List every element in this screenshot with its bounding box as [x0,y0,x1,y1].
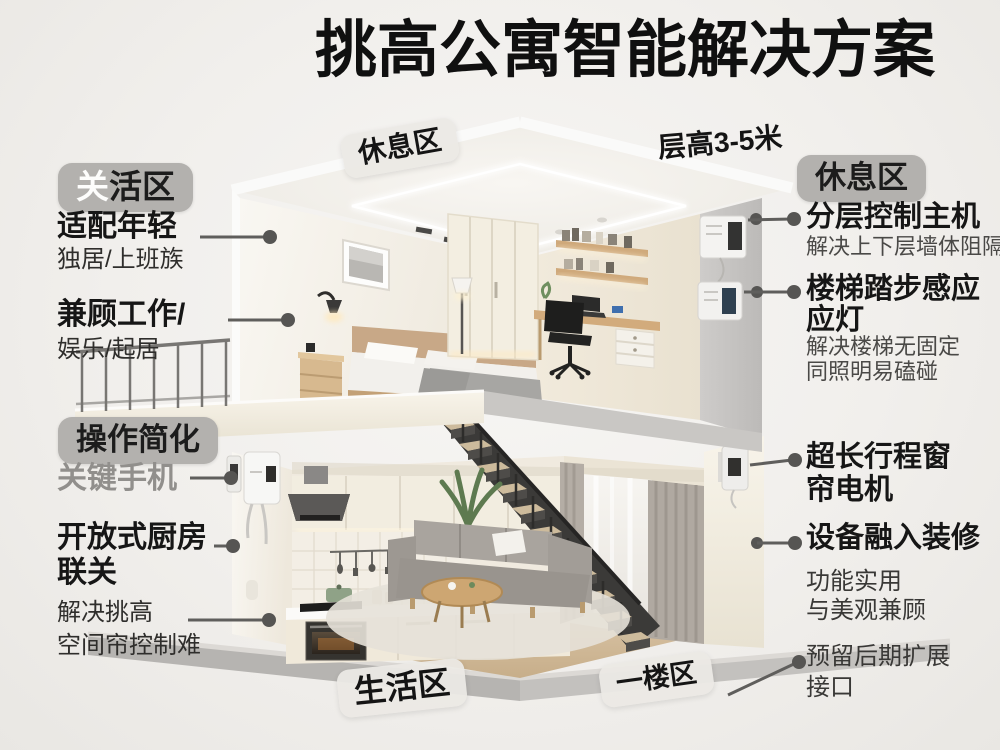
throw-pillow [492,530,526,556]
paper-towel-roll [246,580,258,600]
label-adapt-young-sub: 独居/上班族 [57,248,184,272]
badge-ops-simplified-label: 操作简化 [76,422,200,457]
label-open-kitchen-title: 开放式厨房 [57,523,207,553]
connector-open-kitchen [214,539,240,553]
label-stair-light-sub2: 同照明易磕碰 [806,361,938,383]
infographic-poster: 挑高公寓智能解决方案 休息区 层高3-5米 生活区 一楼区 关活区 适配年轻 独… [0,0,1000,750]
smart-panel-device [698,282,742,320]
connector-zone-host [748,212,801,226]
label-device-decor-title: 设备融入装修 [806,524,980,553]
badge-living-zone-rest: 活区 [109,168,175,205]
label-work-life-title: 兼顾工作/ [57,300,185,330]
badge-ops-simplified: 操作简化 [58,417,218,464]
label-expand-port-sub: 预留后期扩展 [806,645,950,669]
label-zone-host-title: 分层控制主机 [806,203,980,232]
wall-art [343,240,389,290]
label-work-life-sub: 娱乐/起居 [57,338,160,362]
badge-rest-zone: 休息区 [797,155,926,202]
badge-rest-zone-label: 休息区 [815,160,908,195]
tag-first-floor-label: 一楼区 [614,658,698,699]
label-phone-key-title: 关键手机 [57,464,177,494]
label-device-decor-sub: 功能实用 [806,570,902,594]
connector-phone-key [190,471,238,485]
label-curtain-motor-title: 超长行程窗 [806,443,951,472]
badge-living-zone-first: 关 [76,168,109,205]
label-open-kitchen-title2: 联关 [57,558,117,588]
label-curtain-motor-title2: 帘电机 [806,476,893,505]
coffee-table [422,578,502,628]
label-stair-light-title: 楼梯踏步感应 [806,275,980,304]
label-device-decor-sub2: 与美观兼顾 [806,599,926,623]
connector-device-decor [751,536,802,550]
label-loft-curtain-sub: 解决挑高 [57,601,153,625]
label-expand-port-sub2: 接口 [806,676,854,700]
label-adapt-young-title: 适配年轻 [57,212,177,242]
desk-accessory [612,306,623,313]
label-stair-light-sub: 解决楼梯无固定 [806,336,960,358]
tag-lower-zone-label: 生活区 [352,664,451,710]
label-zone-host-sub: 解决上下层墙体阻隔 [806,236,1000,258]
page-title: 挑高公寓智能解决方案 [285,18,965,83]
label-stair-light-title2: 应灯 [806,306,864,335]
tag-upper-zone-label: 休息区 [356,124,444,169]
label-loft-curtain-sub2: 空间帘控制难 [57,634,201,658]
tag-ceiling-height-label: 层高3-5米 [657,122,784,164]
upper-level [232,122,792,438]
badge-living-zone: 关活区 [58,163,193,212]
